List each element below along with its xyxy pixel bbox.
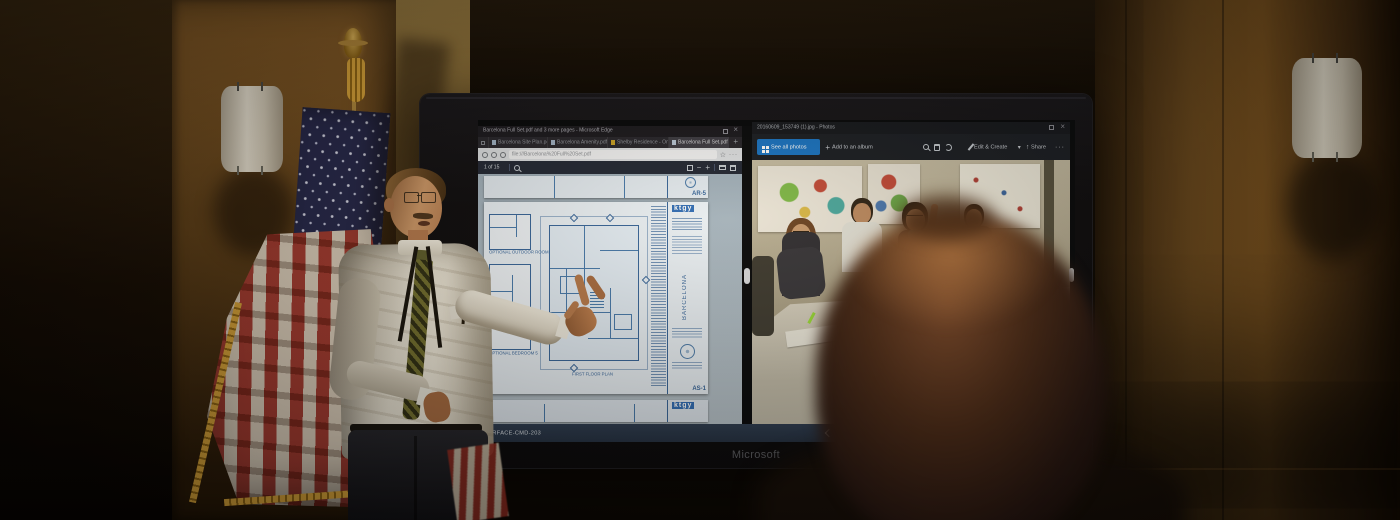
sheet-caption-lines	[672, 362, 702, 370]
zoom-in-icon[interactable]: +	[705, 163, 710, 172]
photos-window-title: 20160609_153749 (1).jpg - Photos	[757, 125, 835, 130]
zoom-icon[interactable]	[923, 144, 929, 150]
pdf-doc-icon	[492, 140, 496, 145]
flag-reflection	[447, 443, 509, 520]
glasses-lens-left	[404, 192, 419, 203]
address-url: file:///Barcelona%20Full%20Set.pdf	[512, 152, 591, 157]
tab-label: Barcelona Amenity.pdf	[557, 140, 607, 145]
edit-create-label: Edit & Create	[974, 144, 1007, 150]
title-box: ktgy	[667, 400, 708, 422]
firm-address-lines	[672, 218, 702, 232]
sheet-number: AS-1	[692, 386, 706, 392]
restore-icon[interactable]	[723, 129, 728, 134]
tab-list-icon[interactable]	[478, 137, 489, 148]
see-more-icon[interactable]: ···	[1055, 144, 1065, 151]
forward-icon[interactable]	[491, 152, 497, 158]
back-icon[interactable]	[482, 152, 488, 158]
general-notes	[651, 206, 666, 388]
chevron-down-icon: ▾	[1018, 144, 1021, 151]
restore-icon[interactable]	[1049, 125, 1054, 130]
presenter-face	[390, 176, 442, 238]
more-icon[interactable]: ···	[729, 152, 738, 158]
address-field[interactable]: file:///Barcelona%20Full%20Set.pdf	[509, 150, 717, 159]
edge-tab-3[interactable]: Shelby Residence - OneNote	[608, 137, 669, 148]
wall-above-display	[470, 0, 1110, 98]
onenote-icon	[611, 140, 615, 145]
edge-titlebar[interactable]: Barcelona Full Set.pdf and 3 more pages …	[478, 126, 742, 137]
edge-tab-4-active[interactable]: Barcelona Full Set.pdf	[669, 137, 729, 148]
edge-window-title: Barcelona Full Set.pdf and 3 more pages …	[483, 128, 613, 133]
bezel-top-highlight	[426, 97, 1086, 99]
glasses-bridge	[417, 195, 421, 196]
toolbar-divider	[714, 164, 715, 171]
title-block: ktgy BARCELONA AS-1	[667, 202, 708, 394]
presenter-ear	[384, 198, 394, 212]
sconce-pin	[1336, 152, 1338, 162]
rotate-icon[interactable]	[945, 144, 952, 151]
see-all-photos-button[interactable]: See all photos	[757, 139, 820, 155]
photos-titlebar[interactable]: 20160609_153749 (1).jpg - Photos ×	[752, 122, 1070, 134]
share-icon: ↑	[1026, 144, 1030, 151]
firm-logo: ktgy	[672, 402, 694, 409]
pdf-doc-icon	[672, 140, 676, 145]
right-wall-sconce	[1292, 58, 1362, 158]
firm-logo: ktgy	[672, 205, 694, 212]
project-name: BARCELONA	[682, 264, 688, 320]
left-dark-wall	[0, 0, 172, 520]
right-sconce-shadow	[1288, 150, 1378, 260]
trouser-crease	[414, 436, 417, 520]
title-box: AR-5	[667, 176, 708, 198]
architect-stamp	[680, 344, 695, 359]
right-panel-seam-2	[1125, 0, 1127, 520]
presenter-mouth	[418, 221, 430, 226]
photos-command-bar: See all photos + Add to an album Edit & …	[752, 134, 1070, 160]
sconce-pin	[1336, 53, 1338, 63]
left-wall-sconce	[221, 86, 283, 172]
see-all-photos-label: See all photos	[771, 144, 807, 150]
sconce-pin	[1312, 53, 1314, 63]
flag-tassel	[347, 58, 365, 102]
flag-finial-wing	[338, 40, 368, 46]
print-icon[interactable]	[719, 165, 726, 170]
new-tab-button[interactable]: +	[729, 137, 742, 148]
glasses-lens-right	[421, 192, 436, 203]
sconce-pin	[237, 82, 239, 91]
edge-tab-bar: Barcelona Site Plan.pdf Barcelona Amenit…	[478, 137, 742, 148]
refresh-icon[interactable]	[500, 152, 506, 158]
consultant-lines	[672, 236, 702, 254]
share-button[interactable]: ↑ Share	[1026, 144, 1050, 151]
add-to-album-label: Add to an album	[832, 144, 873, 150]
right-panel-seam	[1222, 0, 1224, 520]
sconce-pin	[237, 166, 239, 175]
presenter-mustache	[413, 213, 433, 220]
favorites-star-icon[interactable]: ☆	[720, 151, 726, 159]
issue-lines	[672, 328, 702, 338]
sheet-number: AR-5	[692, 191, 706, 197]
close-icon[interactable]: ×	[733, 125, 738, 134]
share-label: Share	[1031, 144, 1046, 150]
edge-tab-1[interactable]: Barcelona Site Plan.pdf	[489, 137, 548, 148]
add-to-album-button[interactable]: + Add to an album	[825, 143, 883, 152]
photo-grid-icon	[762, 146, 765, 149]
microsoft-logo: Microsoft	[732, 449, 780, 461]
conference-room-photo: Microsoft Barcelona Full Set.pdf and 3 m…	[0, 0, 1400, 520]
tab-label: Barcelona Full Set.pdf	[678, 140, 728, 145]
edge-tab-2[interactable]: Barcelona Amenity.pdf	[548, 137, 607, 148]
zoom-out-icon[interactable]: −	[697, 163, 702, 172]
sconce-pin	[261, 166, 263, 175]
sconce-pin	[261, 82, 263, 91]
add-icon: +	[825, 143, 830, 152]
close-icon[interactable]: ×	[1060, 122, 1065, 131]
split-drag-handle[interactable]	[744, 268, 750, 284]
pdf-doc-icon	[551, 140, 555, 145]
sconce-pin	[1312, 152, 1314, 162]
photo-chair	[752, 256, 774, 336]
foreground-viewer-stray-hair	[898, 196, 994, 240]
edit-create-button[interactable]: Edit & Create ▾	[970, 143, 1021, 151]
fit-page-icon[interactable]	[687, 165, 693, 171]
save-icon[interactable]	[730, 165, 736, 171]
delete-icon[interactable]	[934, 144, 940, 151]
tab-label: Barcelona Site Plan.pdf	[498, 140, 548, 145]
tab-label: Shelby Residence - OneNote	[617, 140, 669, 145]
